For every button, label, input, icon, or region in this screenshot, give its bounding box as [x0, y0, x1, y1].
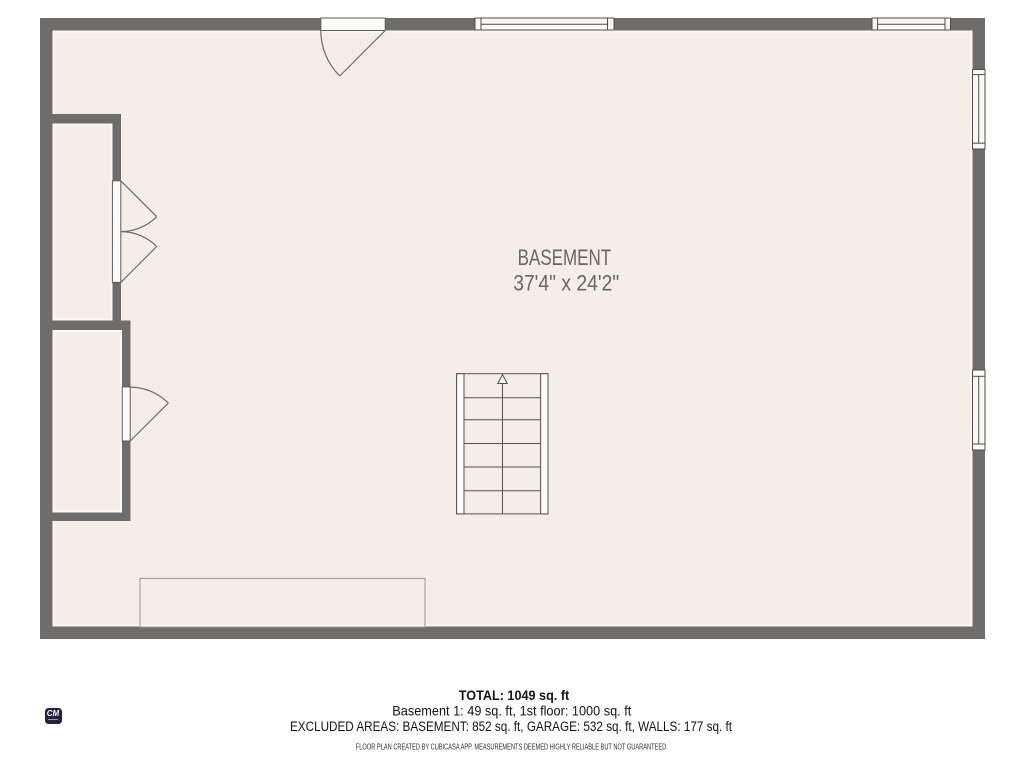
svg-text:37'4" x 24'2": 37'4" x 24'2"	[513, 270, 619, 295]
svg-text:Basement 1: 49 sq. ft, 1st flo: Basement 1: 49 sq. ft, 1st floor: 1000 s…	[392, 703, 631, 719]
svg-text:FLOOR PLAN CREATED BY CUBICASA: FLOOR PLAN CREATED BY CUBICASA APP. MEAS…	[356, 742, 668, 751]
svg-text:BASEMENT: BASEMENT	[518, 245, 612, 270]
svg-text:EXCLUDED AREAS: BASEMENT: 852: EXCLUDED AREAS: BASEMENT: 852 sq. ft, GA…	[290, 719, 732, 735]
svg-text:TOTAL: 1049 sq. ft: TOTAL: 1049 sq. ft	[459, 688, 570, 704]
